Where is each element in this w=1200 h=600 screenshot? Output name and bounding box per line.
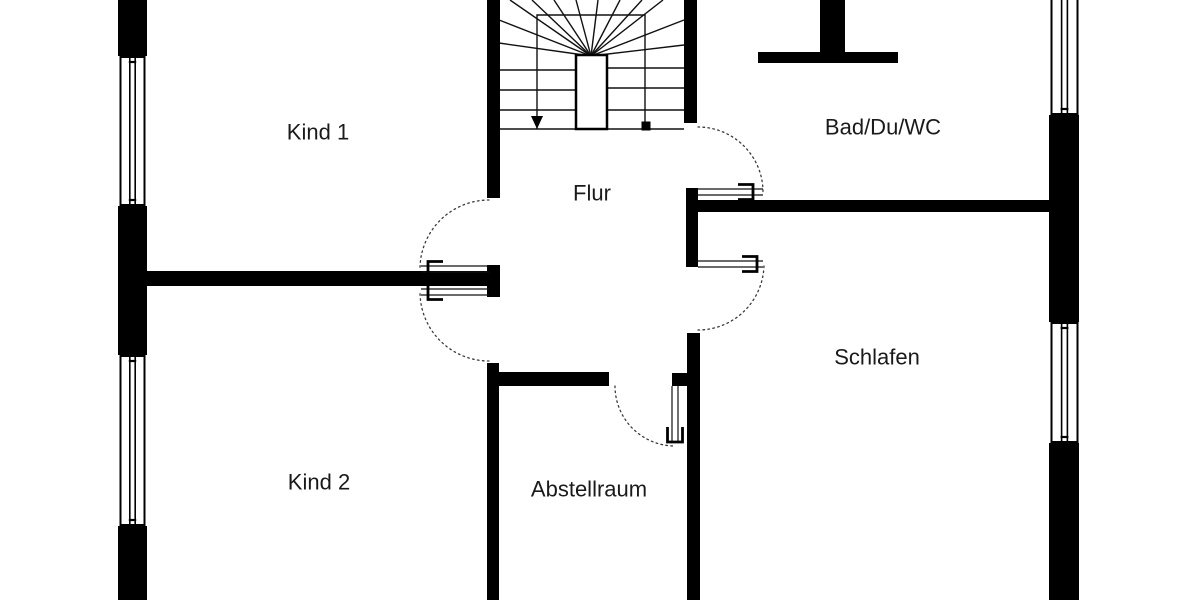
stair-walkline-start-marker [642, 122, 651, 131]
room-label-flur: Flur [573, 181, 611, 206]
floor-plan: Kind 1Kind 2FlurBad/Du/WCSchlafenAbstell… [0, 0, 1200, 600]
wall-exterior-left-top [118, 0, 147, 56]
stair-newel [576, 55, 607, 129]
wall-exterior-left-bottom [118, 526, 147, 600]
window-schlafen-east [1048, 322, 1081, 443]
window-kind1-west [117, 56, 148, 206]
room-label-kind2: Kind 2 [288, 470, 350, 495]
window-bad-east [1048, 0, 1081, 115]
wall-abstellraum-north [490, 372, 609, 386]
wall-flur-east-stub [686, 188, 698, 267]
wall-chimney-flange [758, 52, 898, 63]
wall-kind-door-stub [487, 265, 500, 297]
wall-exterior-right-upper [1049, 115, 1079, 322]
window-kind2-west [117, 355, 148, 526]
floor-plan-svg: Kind 1Kind 2FlurBad/Du/WCSchlafenAbstell… [0, 0, 1200, 600]
room-label-schlafen: Schlafen [834, 345, 920, 370]
room-label-abstellraum: Abstellraum [531, 477, 647, 502]
wall-exterior-left-mid [118, 206, 147, 355]
room-label-bad: Bad/Du/WC [825, 115, 941, 140]
wall-abstellraum-north-stub [672, 373, 700, 386]
room-label-kind1: Kind 1 [287, 120, 349, 145]
wall-stair-left [487, 0, 500, 198]
wall-bad-south [697, 200, 1049, 212]
wall-abstellraum-west [487, 363, 499, 600]
wall-exterior-right-lower [1049, 443, 1079, 600]
wall-stair-right [684, 0, 697, 123]
